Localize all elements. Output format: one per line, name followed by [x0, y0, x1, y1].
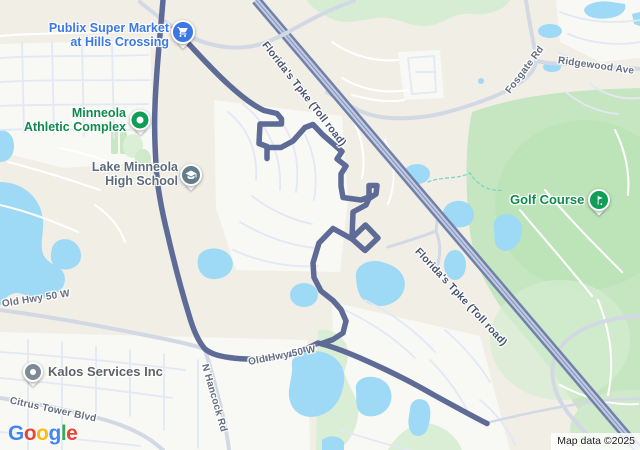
athletic-complex-marker[interactable]	[130, 110, 151, 131]
kalos-marker-circle	[23, 362, 43, 382]
shopping-cart-icon	[177, 26, 189, 38]
golf-flag-icon	[594, 195, 605, 206]
google-logo-letter: G	[8, 422, 24, 445]
map-geography	[0, 0, 640, 450]
generic-dot-icon	[30, 369, 36, 375]
golf-course-marker[interactable]	[588, 189, 610, 211]
park-dot-icon	[137, 117, 144, 124]
google-logo-letter: e	[66, 422, 77, 445]
publix-marker[interactable]	[171, 20, 195, 44]
map-canvas[interactable]: Florida's Tpke (Toll road) Florida's Tpk…	[0, 0, 640, 450]
google-logo-letter: o	[24, 422, 36, 445]
publix-marker-circle	[171, 20, 195, 44]
google-logo-letter: g	[49, 422, 61, 445]
high-school-marker[interactable]	[180, 164, 202, 186]
golf-marker-circle	[588, 189, 610, 211]
kalos-marker[interactable]	[23, 362, 43, 382]
map-attribution: Map data ©2025	[551, 433, 640, 450]
athletic-marker-circle	[130, 110, 151, 131]
school-marker-circle	[180, 164, 202, 186]
google-logo-letter: o	[36, 422, 48, 445]
graduation-cap-icon	[185, 169, 197, 181]
google-logo[interactable]: Google	[8, 422, 77, 446]
